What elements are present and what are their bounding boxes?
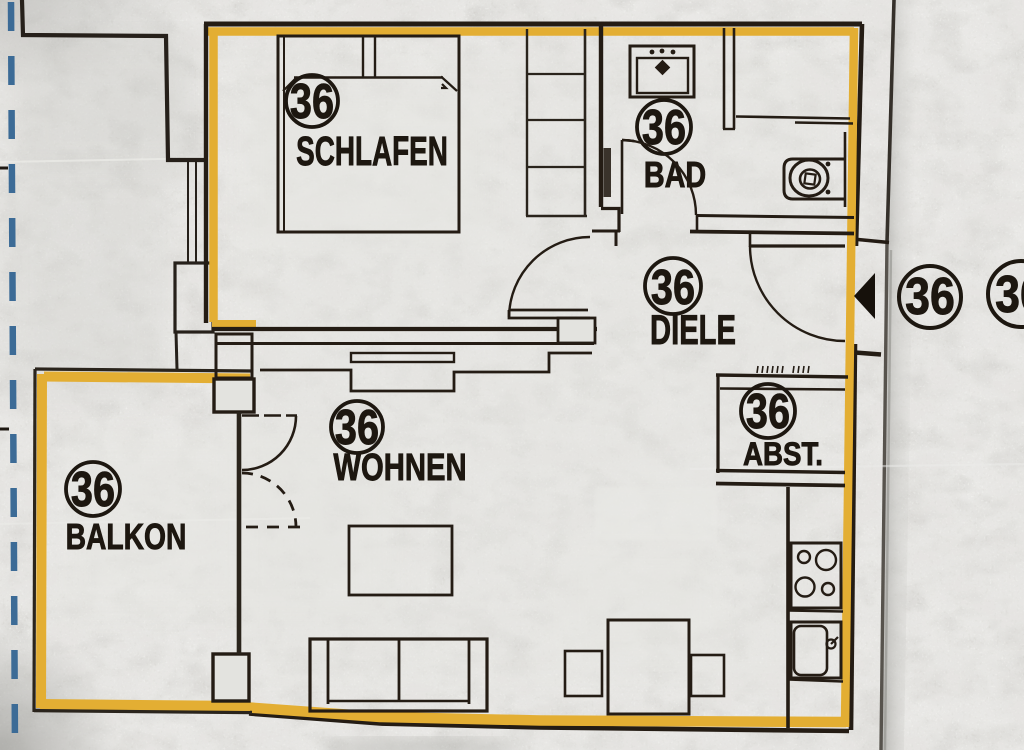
svg-text:BAD: BAD: [644, 154, 706, 195]
svg-text:ABST.: ABST.: [743, 437, 823, 472]
svg-text:36: 36: [642, 101, 686, 155]
svg-text:36: 36: [290, 75, 334, 129]
svg-text:36: 36: [71, 463, 115, 517]
svg-text:36: 36: [995, 266, 1024, 324]
svg-text:36: 36: [746, 385, 790, 439]
svg-text:WOHNEN: WOHNEN: [333, 446, 466, 489]
svg-text:DIELE: DIELE: [650, 306, 736, 354]
svg-text:SCHLAFEN: SCHLAFEN: [296, 129, 448, 175]
svg-text:36: 36: [905, 268, 955, 326]
svg-text:BALKON: BALKON: [66, 517, 187, 557]
